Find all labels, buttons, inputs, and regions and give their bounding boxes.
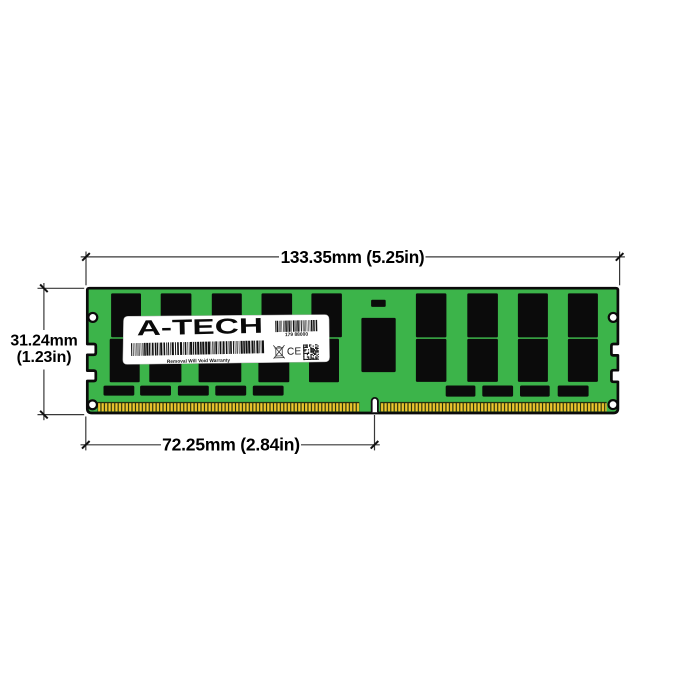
svg-text:CE: CE	[287, 346, 302, 357]
svg-text:72.25mm (2.84in): 72.25mm (2.84in)	[162, 435, 300, 455]
svg-text:31.24mm: 31.24mm	[10, 333, 77, 350]
svg-text:179 88000: 179 88000	[285, 332, 309, 338]
svg-text:(1.23in): (1.23in)	[17, 349, 72, 366]
svg-text:A-TECH: A-TECH	[136, 314, 263, 340]
svg-text:133.35mm (5.25in): 133.35mm (5.25in)	[281, 247, 425, 267]
